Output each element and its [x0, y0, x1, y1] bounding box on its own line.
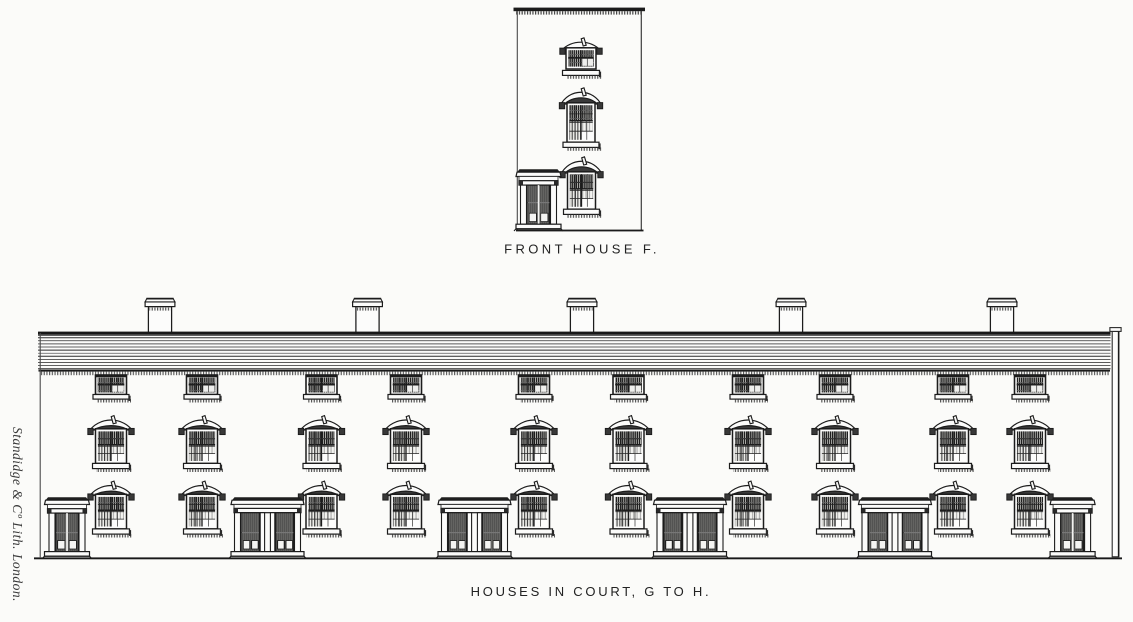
svg-text:Standidge & Cº Lith. London.: Standidge & Cº Lith. London.	[10, 427, 25, 602]
svg-text:HOUSES IN COURT, G TO H.: HOUSES IN COURT, G TO H.	[471, 584, 712, 599]
svg-text:FRONT HOUSE F.: FRONT HOUSE F.	[504, 242, 660, 257]
